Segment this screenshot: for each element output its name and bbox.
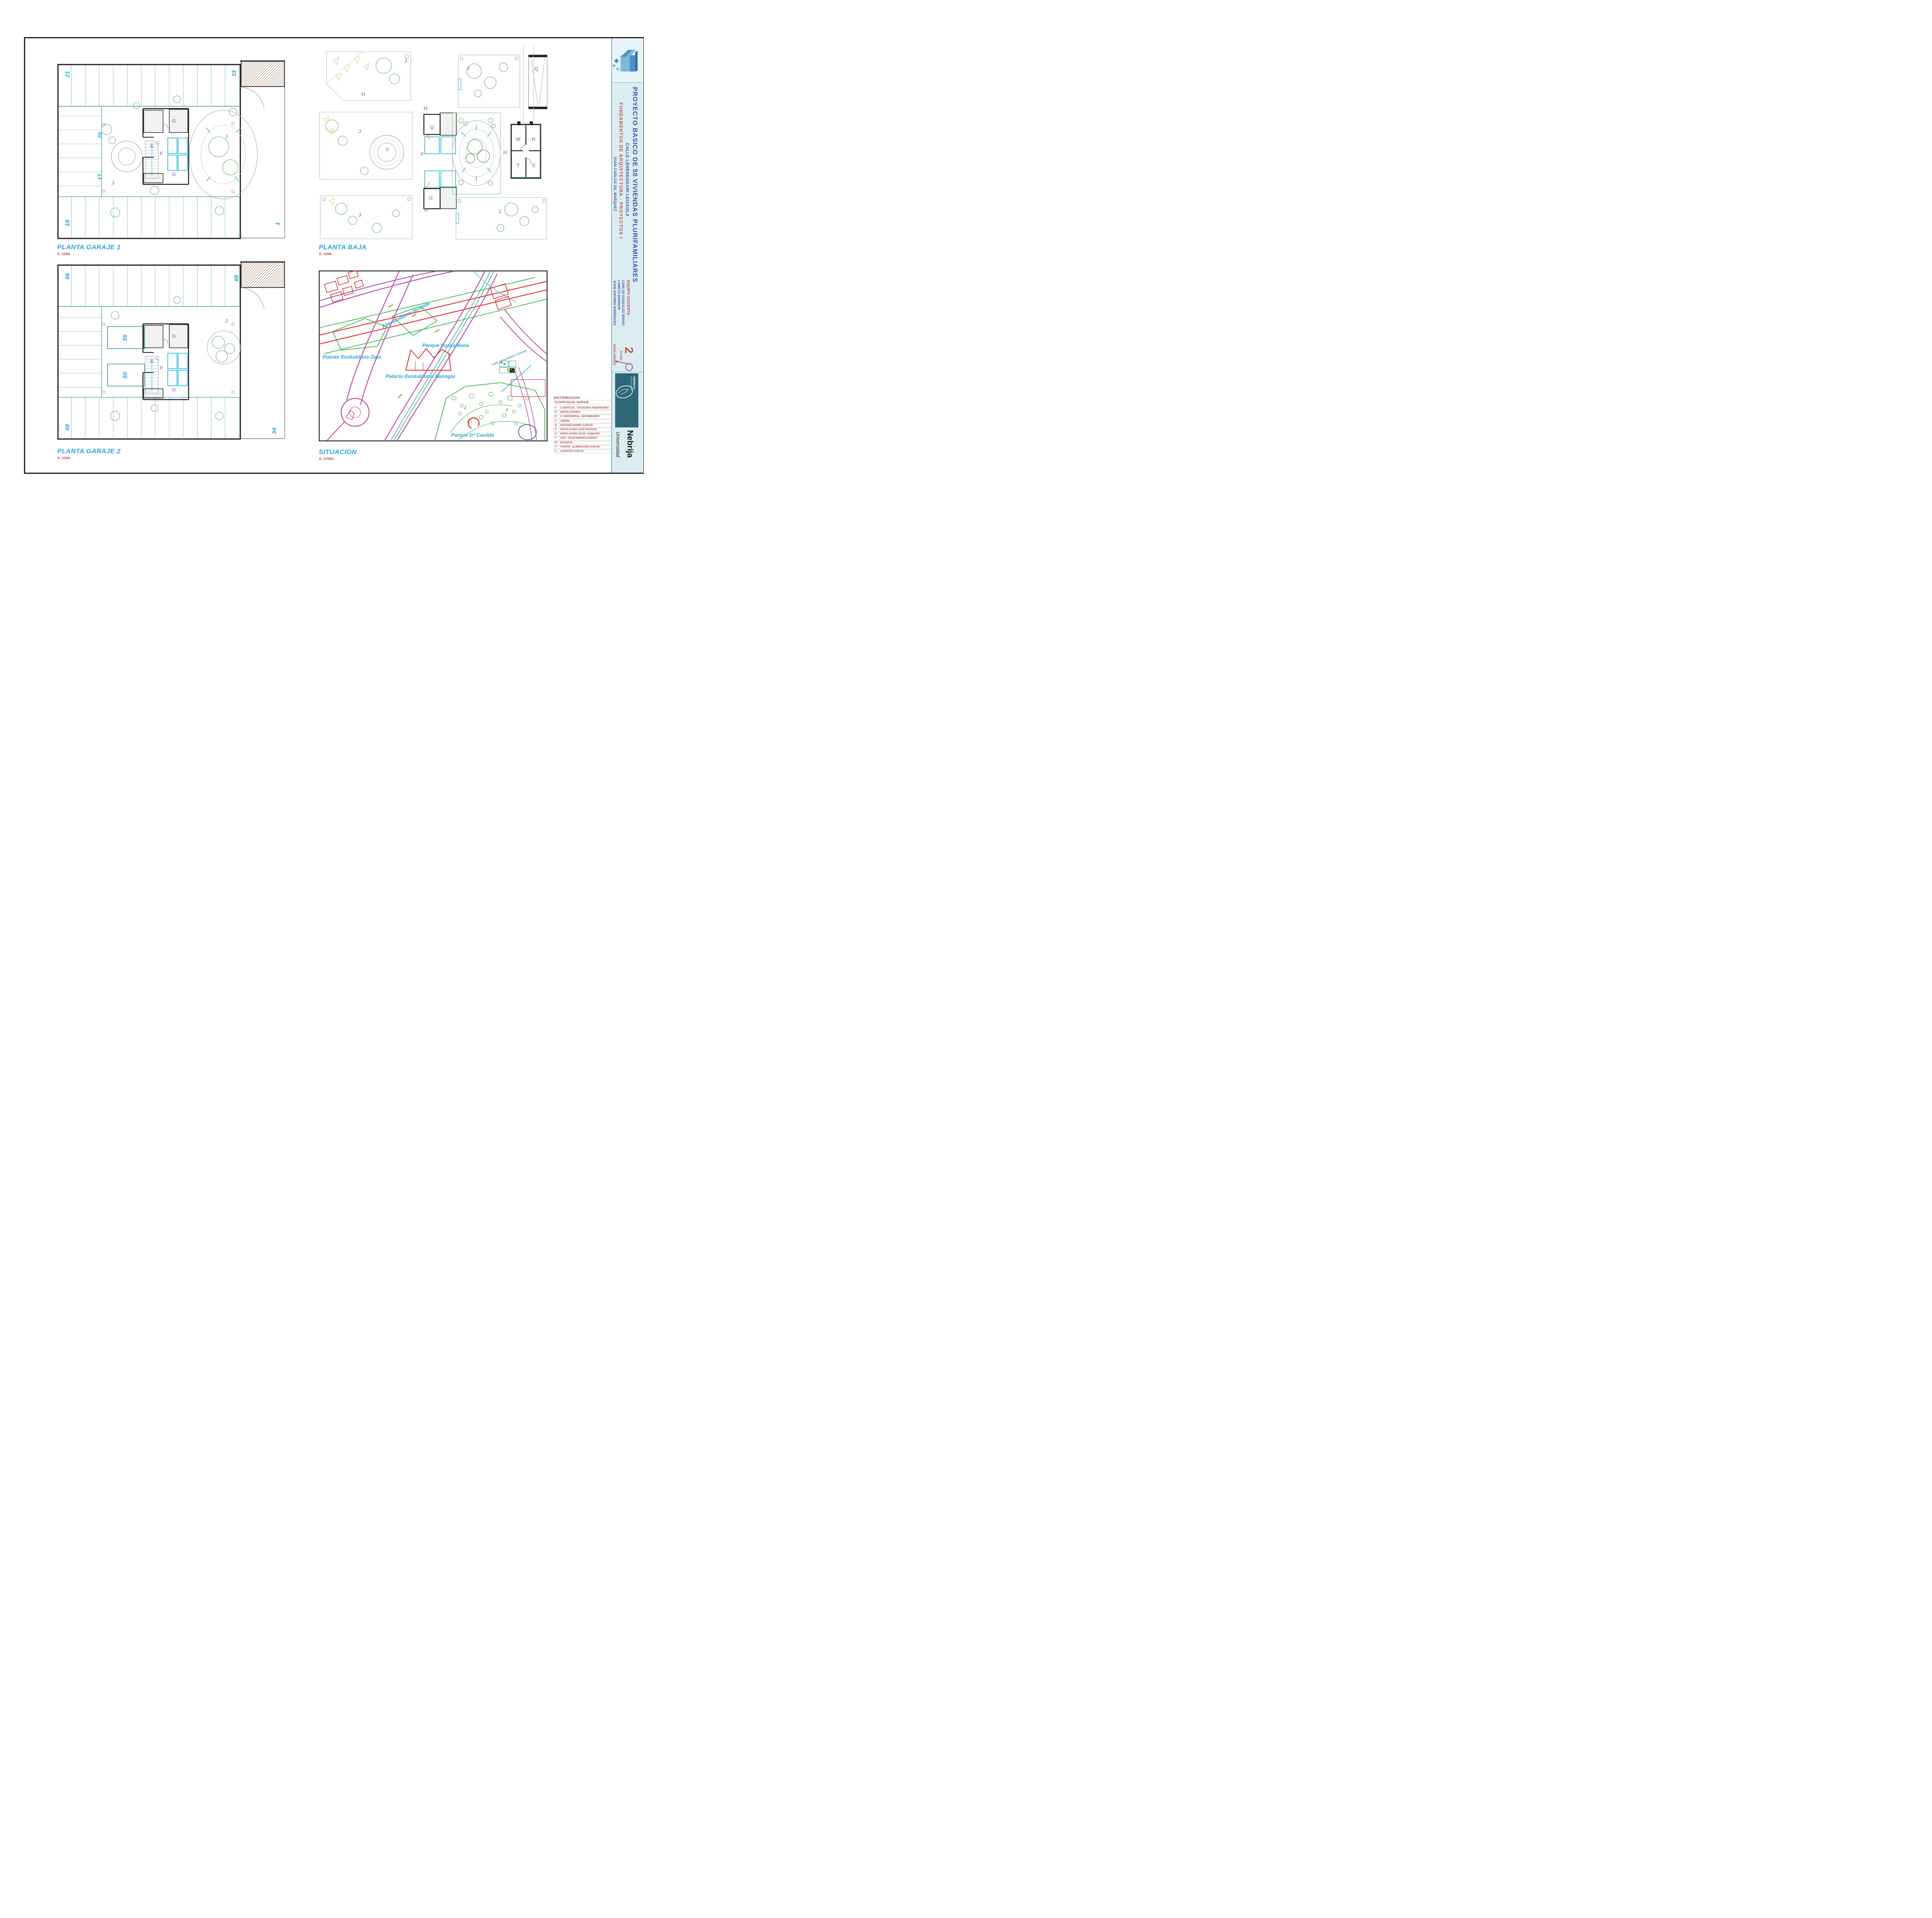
stall-number: 17 bbox=[97, 174, 104, 180]
university-subtitle: Universidad bbox=[615, 432, 621, 457]
sheet-number-label: PLANO bbox=[619, 351, 622, 361]
course-title: FUNDAMENTOS DE ARQUITECTURA - PROYECTOS … bbox=[618, 102, 623, 239]
zone-letter: Z bbox=[150, 358, 153, 364]
zone-letter: T bbox=[517, 163, 520, 168]
zone-letter: Y bbox=[386, 147, 389, 153]
legend-row: RINSTALACION- ELECTRICIDAD bbox=[554, 428, 614, 432]
legend-subtitle: PLANTA BAJA- GARAJE bbox=[554, 400, 614, 405]
title-block: PROYECTO BASICO DE 50 VIVIENDAS PLURIFAM… bbox=[611, 38, 643, 473]
zone-letter: Z bbox=[150, 143, 153, 148]
legend-distribucion: DISTRIBUCION PLANTA BAJA- GARAJE FC.VERT… bbox=[554, 396, 614, 454]
street-label-puente: Puente Euskalduna Zubi bbox=[323, 354, 381, 360]
architecture-sketch-logo bbox=[612, 38, 643, 82]
zone-letter: J bbox=[225, 318, 228, 324]
stall-number: 20 bbox=[97, 132, 104, 139]
team-member: LORETO BARRIOS bbox=[617, 280, 621, 310]
zone-letter: J bbox=[358, 129, 361, 134]
street-label-calle-lehendakari: Calle Lehendakari Leizaola bbox=[492, 349, 527, 366]
place-label-palacio: Palacio Euskalduna Jauregia bbox=[386, 373, 455, 379]
drawing-sheet: 21 33 20 17 16 1 G Z F G J J 56 68 55 50… bbox=[0, 0, 678, 480]
plan-title-situacion: SITUACION bbox=[319, 448, 357, 456]
stall-number: 33 bbox=[231, 70, 238, 77]
legend-row: ZALMACEN GARAJE bbox=[554, 449, 614, 453]
project-address: CALLE LEHENDAKARI LEIZAOLA bbox=[625, 143, 629, 217]
map-zone-letter: J bbox=[464, 405, 466, 410]
author-name: JUAN CARLOS GIL MARQUEZ bbox=[613, 157, 617, 211]
zone-letter: F bbox=[160, 365, 163, 371]
university-logo: UNIVERSIDAD NEBRIJA bbox=[615, 373, 638, 427]
north-arrow-icon bbox=[614, 361, 635, 371]
team-member: JUAN ANTONIO RODRIGUEZ bbox=[613, 280, 617, 326]
stall-number: 56 bbox=[65, 273, 71, 280]
zone-letter: J bbox=[225, 134, 228, 140]
zone-letter: F bbox=[421, 151, 424, 157]
plan-title-garaje2: PLANTA GARAJE 2 bbox=[57, 448, 121, 455]
zone-letter: J bbox=[467, 65, 469, 71]
stall-number: 49 bbox=[65, 424, 71, 431]
stall-number: 50 bbox=[122, 372, 129, 379]
place-label-parque-casilda: Parque Dª Casilda bbox=[451, 432, 494, 438]
university-logo-text: UNIVERSIDAD bbox=[630, 376, 632, 391]
legend-row: JJARDIN bbox=[554, 419, 614, 423]
zone-letter: R bbox=[532, 136, 535, 142]
logo-panel bbox=[612, 38, 643, 83]
plan-scale-garaje2: E: 1/200 bbox=[58, 456, 70, 460]
zone-letter: G bbox=[172, 172, 176, 177]
zone-letter: J bbox=[358, 212, 361, 218]
stall-number: 1 bbox=[275, 222, 281, 225]
team-heading: EQUIPO DOCENTE bbox=[626, 280, 630, 315]
legend-row: QENTRADA-RAMPA GARAJE bbox=[554, 424, 614, 427]
plan-title-garaje1: PLANTA GARAJE 1 bbox=[57, 243, 121, 251]
zone-letter: J bbox=[404, 58, 407, 64]
legend-row: WBASURAS bbox=[554, 441, 614, 445]
zone-letter: H bbox=[423, 106, 427, 111]
zone-letter: G bbox=[172, 387, 176, 393]
stall-number: 68 bbox=[233, 275, 240, 282]
legend-row: HC. HORIZONTAL - DISTRIBUIDOR bbox=[554, 415, 614, 419]
zone-letter: S bbox=[532, 163, 536, 168]
stall-number: 34 bbox=[271, 428, 278, 434]
zone-letter: W bbox=[516, 136, 520, 142]
plan-scale-baja: E: 1/200 bbox=[319, 252, 332, 256]
project-title: PROYECTO BASICO DE 50 VIVIENDAS PLURIFAM… bbox=[631, 87, 638, 283]
team-member: CARLOS GONZALEZ BRAVO bbox=[621, 280, 625, 325]
stall-number: 21 bbox=[65, 71, 71, 78]
zone-letter: H bbox=[503, 150, 507, 155]
zone-letter: G bbox=[429, 195, 433, 201]
zone-letter: J bbox=[498, 209, 501, 214]
place-label-parque-euskalduna: Parque Euskalduna bbox=[422, 342, 469, 348]
legend-row: SISNTALACION- AGUA- ALMACEN bbox=[554, 432, 614, 436]
university-logo-text: NEBRIJA bbox=[633, 376, 636, 389]
street-label-paseo: Paseo Eduardo Victoria de Lecea bbox=[501, 364, 532, 393]
zone-letter: F bbox=[160, 151, 163, 157]
map-zone-letter: J bbox=[448, 353, 451, 357]
legend-row: TISNT.- TELECOMUNICACIONES bbox=[554, 436, 614, 440]
stall-number: 55 bbox=[122, 335, 129, 341]
zone-letter: G bbox=[172, 118, 176, 124]
stall-number: 16 bbox=[65, 220, 71, 226]
street-label-abandoibarra: Abandoibarra Hiribide bbox=[381, 300, 430, 329]
zone-letter: H bbox=[424, 207, 428, 213]
zone-letter: G bbox=[430, 125, 434, 131]
zone-letter: Q bbox=[534, 66, 538, 72]
plan-scale-situacion: E: 1/7000 bbox=[319, 457, 333, 461]
zone-letter: G bbox=[172, 334, 176, 339]
university-name: Nebrija bbox=[625, 430, 634, 458]
sheet-number: 2 bbox=[622, 347, 635, 354]
legend-row: YFUENTE - ILUMINACIÓN GARAJE bbox=[554, 445, 614, 449]
legend-row: GINSTALACIONES bbox=[554, 410, 614, 414]
zone-letter: H bbox=[361, 92, 365, 97]
zone-letter: J bbox=[111, 180, 114, 186]
plan-title-baja: PLANTA BAJA bbox=[319, 243, 367, 251]
map-zone-letter: J bbox=[505, 408, 508, 412]
legend-row: FC.VERTICAL - ESCALERA-ASCENSORES bbox=[554, 406, 614, 410]
legend-title: DISTRIBUCION bbox=[554, 396, 614, 400]
plan-scale-garaje1: E: 1/200 bbox=[58, 252, 70, 256]
